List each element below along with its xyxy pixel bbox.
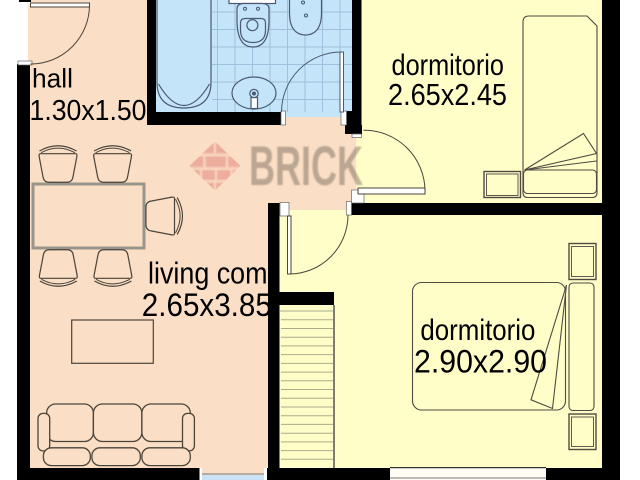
- svg-text:hall: hall: [32, 64, 73, 94]
- svg-text:2.65x2.45: 2.65x2.45: [388, 77, 507, 112]
- svg-text:living com.: living com.: [148, 256, 275, 291]
- svg-text:2.65x3.85: 2.65x3.85: [142, 287, 272, 323]
- svg-text:1.30x1.50: 1.30x1.50: [30, 95, 147, 127]
- svg-text:2.90x2.90: 2.90x2.90: [414, 344, 547, 380]
- svg-text:BRICK: BRICK: [249, 135, 363, 197]
- svg-text:dormitorio: dormitorio: [420, 314, 535, 347]
